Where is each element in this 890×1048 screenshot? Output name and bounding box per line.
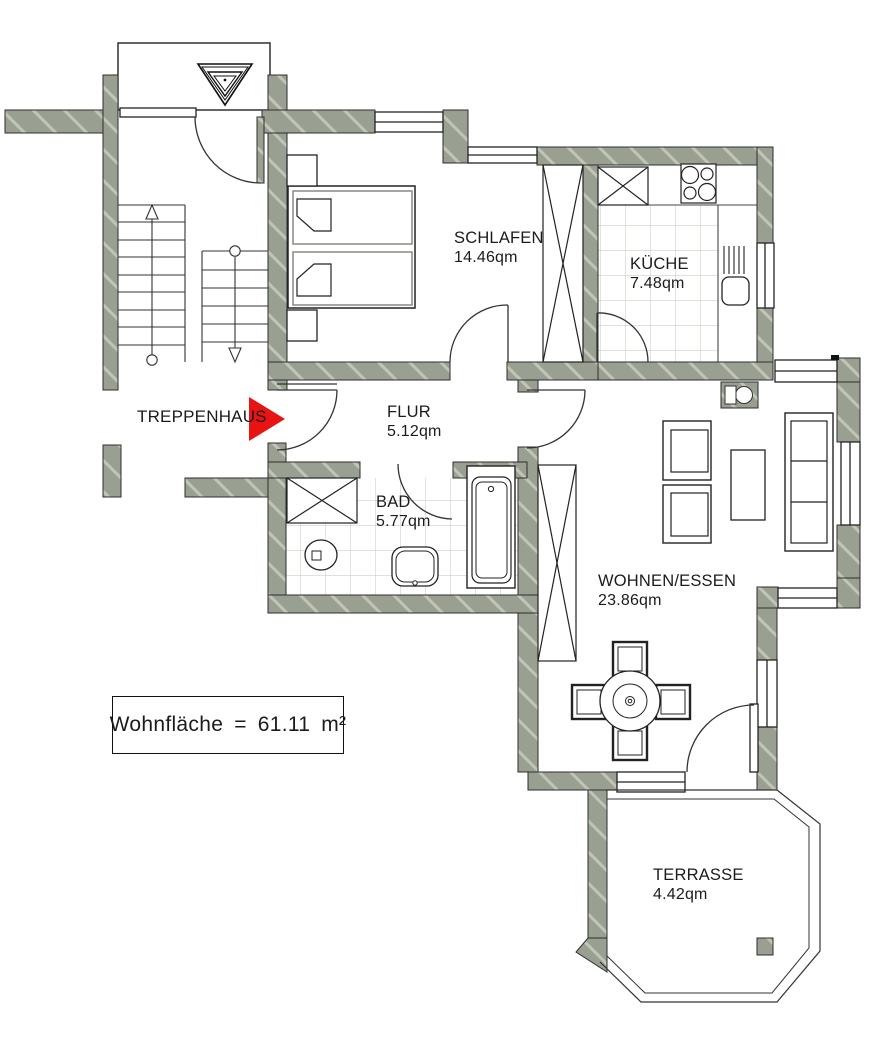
- armchair-1: [663, 421, 711, 480]
- total-area-unit: m²: [321, 713, 346, 737]
- room-label-bad: BAD 5.77qm: [376, 492, 431, 532]
- dining-set: [572, 642, 690, 760]
- window-entry-sidelite: [120, 108, 196, 117]
- window-dining: [617, 772, 685, 792]
- floor-plan-drawing: [0, 0, 890, 1048]
- window-kitchen-right: [757, 243, 774, 308]
- door-arc-entrance: [195, 117, 261, 183]
- window-step: [468, 147, 537, 163]
- room-name: FLUR: [387, 402, 442, 422]
- room-label-kueche: KÜCHE 7.48qm: [630, 254, 689, 294]
- door-apartment-entry: [277, 384, 337, 450]
- room-label-treppenhaus: TREPPENHAUS: [137, 407, 267, 427]
- terrace-wall-tip: [576, 938, 607, 972]
- door-flur-living: [527, 390, 585, 448]
- total-area-value: 61.11: [258, 713, 311, 737]
- terrace-pillar: [757, 938, 773, 955]
- room-area: 5.12qm: [387, 422, 442, 442]
- window-living-top: [775, 360, 837, 382]
- room-label-schlafen: SCHLAFEN 14.46qm: [454, 228, 544, 268]
- terrace-side-wall: [588, 790, 607, 940]
- equals-sign: =: [234, 713, 247, 737]
- room-label-flur: FLUR 5.12qm: [387, 402, 442, 442]
- room-area: 5.77qm: [376, 512, 431, 532]
- room-name: TERRASSE: [653, 865, 744, 885]
- room-area: 7.48qm: [630, 274, 689, 294]
- kitchen-cabinet-x: [598, 167, 648, 205]
- door-terrace: [687, 704, 758, 772]
- room-name: SCHLAFEN: [454, 228, 544, 248]
- room-name: WOHNEN/ESSEN: [598, 571, 736, 591]
- treppenhaus-text: TREPPENHAUS: [137, 407, 267, 427]
- coffee-table: [731, 450, 765, 520]
- room-area: 14.46qm: [454, 248, 544, 268]
- nightstand: [287, 310, 317, 341]
- armchair-2: [663, 485, 711, 543]
- room-name: KÜCHE: [630, 254, 689, 274]
- wardrobe-living: [538, 465, 576, 661]
- room-area: 4.42qm: [653, 885, 744, 905]
- wardrobe-bedroom: [543, 165, 583, 362]
- window-bay-bottom: [778, 588, 837, 608]
- dining-chair-inner: [661, 690, 685, 714]
- dining-chair-inner: [577, 690, 601, 714]
- window-bedroom-top: [375, 112, 443, 132]
- bath-sink: [392, 547, 438, 586]
- stove: [681, 164, 716, 203]
- nightstand: [287, 155, 317, 186]
- stairs: [118, 205, 268, 365]
- room-label-wohnen-essen: WOHNEN/ESSEN 23.86qm: [598, 571, 736, 611]
- stair-direction-up: [146, 205, 158, 365]
- entrance-door-leaf: [257, 117, 264, 183]
- total-area-box: Wohnfläche = 61.11 m²: [112, 696, 344, 754]
- stair-direction-down: [229, 246, 241, 362]
- room-label-terrasse: TERRASSE 4.42qm: [653, 865, 744, 905]
- stairwell-vestibule: [118, 43, 270, 110]
- room-area: 23.86qm: [598, 591, 736, 611]
- dining-chair-inner: [618, 647, 642, 671]
- bath-cabinet-x: [287, 478, 357, 523]
- door-bedroom: [450, 305, 508, 362]
- chimney-details: [725, 386, 753, 404]
- sofa: [785, 413, 833, 551]
- window-bay-left: [757, 660, 777, 727]
- floor-plan: TREPPENHAUS SCHLAFEN 14.46qm KÜCHE 7.48q…: [0, 0, 890, 1048]
- kitchen-sink: [722, 277, 749, 305]
- dining-chair-inner: [618, 731, 642, 755]
- total-area-label: Wohnfläche: [110, 713, 224, 737]
- window-living-right: [841, 442, 860, 525]
- bathtub: [467, 466, 515, 588]
- dish-rack: [724, 246, 744, 274]
- toilet: [305, 540, 337, 570]
- room-name: BAD: [376, 492, 431, 512]
